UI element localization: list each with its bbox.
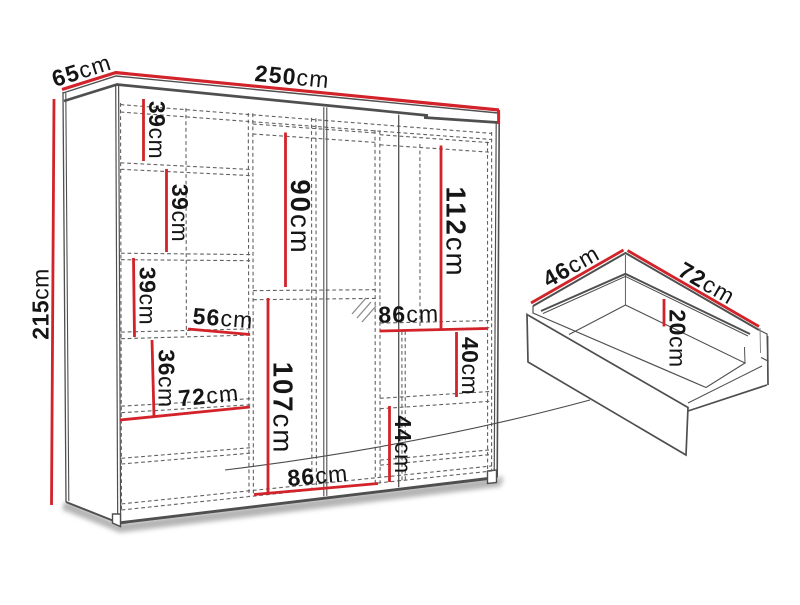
svg-text:86cm: 86cm bbox=[286, 460, 349, 491]
svg-text:39cm: 39cm bbox=[144, 101, 170, 159]
svg-text:56cm: 56cm bbox=[192, 303, 255, 334]
svg-text:107cm: 107cm bbox=[268, 362, 299, 455]
svg-text:20cm: 20cm bbox=[665, 309, 691, 367]
svg-text:112cm: 112cm bbox=[441, 186, 472, 277]
svg-text:215cm: 215cm bbox=[28, 268, 54, 340]
svg-text:86cm: 86cm bbox=[378, 300, 440, 328]
svg-text:36cm: 36cm bbox=[154, 349, 180, 407]
svg-text:40cm: 40cm bbox=[457, 337, 483, 395]
svg-text:90cm: 90cm bbox=[285, 179, 316, 254]
svg-text:39cm: 39cm bbox=[167, 184, 193, 242]
svg-text:39cm: 39cm bbox=[135, 267, 161, 325]
svg-text:44cm: 44cm bbox=[390, 415, 416, 473]
